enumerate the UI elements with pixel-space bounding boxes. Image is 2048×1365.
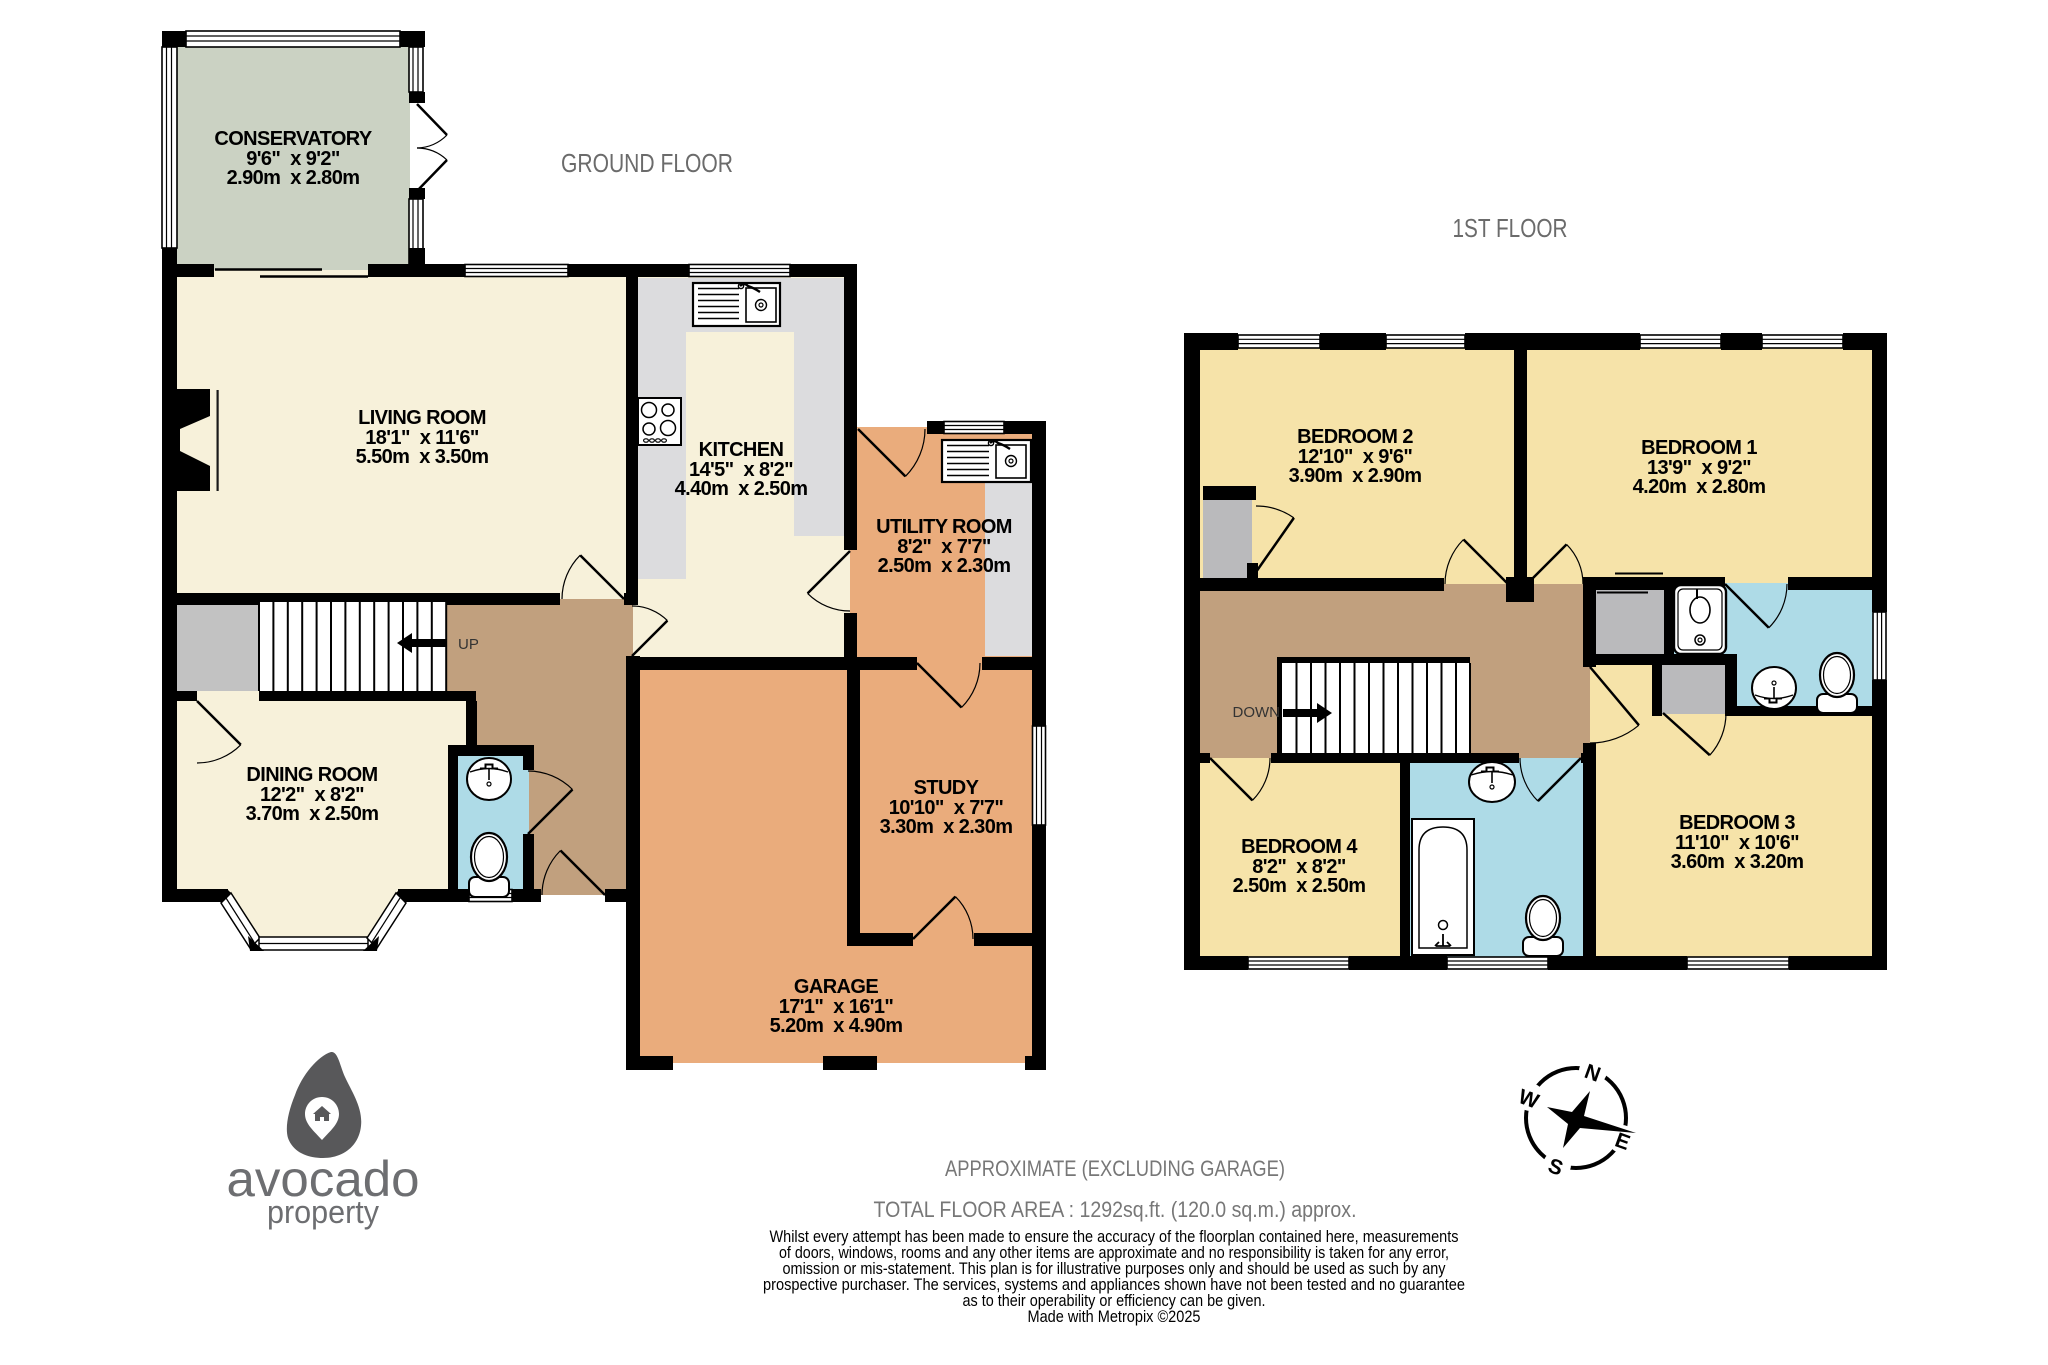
svg-text:5.20m x 4.90m: 5.20m x 4.90m [770,1015,903,1037]
svg-text:CONSERVATORY: CONSERVATORY [214,128,373,150]
svg-text:1ST FLOOR: 1ST FLOOR [1453,213,1568,243]
svg-text:5.50m x 3.50m: 5.50m x 3.50m [356,446,489,468]
svg-text:3.70m x 2.50m: 3.70m x 2.50m [246,803,379,825]
svg-text:3.30m x 2.30m: 3.30m x 2.30m [880,816,1013,838]
svg-text:TOTAL FLOOR AREA : 1292sq.ft.: TOTAL FLOOR AREA : 1292sq.ft. (120.0 sq.… [874,1197,1357,1222]
svg-text:APPROXIMATE (EXCLUDING GARAGE): APPROXIMATE (EXCLUDING GARAGE) [945,1156,1285,1181]
svg-text:BEDROOM 1: BEDROOM 1 [1641,437,1757,459]
svg-text:KITCHEN: KITCHEN [699,439,784,461]
svg-text:BEDROOM 3: BEDROOM 3 [1679,812,1795,834]
svg-text:BEDROOM 4: BEDROOM 4 [1241,836,1358,858]
svg-text:4.20m x 2.80m: 4.20m x 2.80m [1633,476,1766,498]
svg-text:STUDY: STUDY [914,777,980,799]
svg-text:DOWN: DOWN [1233,704,1281,721]
svg-text:LIVING ROOM: LIVING ROOM [358,407,486,429]
svg-text:property: property [267,1194,379,1230]
svg-text:4.40m x 2.50m: 4.40m x 2.50m [675,478,808,500]
svg-text:2.90m x 2.80m: 2.90m x 2.80m [227,167,360,189]
svg-text:UP: UP [458,636,479,653]
svg-text:2.50m x 2.50m: 2.50m x 2.50m [1233,875,1366,897]
svg-text:3.90m x 2.90m: 3.90m x 2.90m [1289,465,1422,487]
svg-text:GROUND FLOOR: GROUND FLOOR [561,148,733,178]
svg-text:2.50m x 2.30m: 2.50m x 2.30m [878,555,1011,577]
svg-text:UTILITY ROOM: UTILITY ROOM [876,516,1012,538]
svg-text:BEDROOM 2: BEDROOM 2 [1297,426,1413,448]
svg-text:DINING ROOM: DINING ROOM [246,764,377,786]
svg-text:Made with Metropix ©2025: Made with Metropix ©2025 [1028,1308,1201,1326]
svg-text:GARAGE: GARAGE [794,976,878,998]
svg-text:3.60m x 3.20m: 3.60m x 3.20m [1671,851,1804,873]
